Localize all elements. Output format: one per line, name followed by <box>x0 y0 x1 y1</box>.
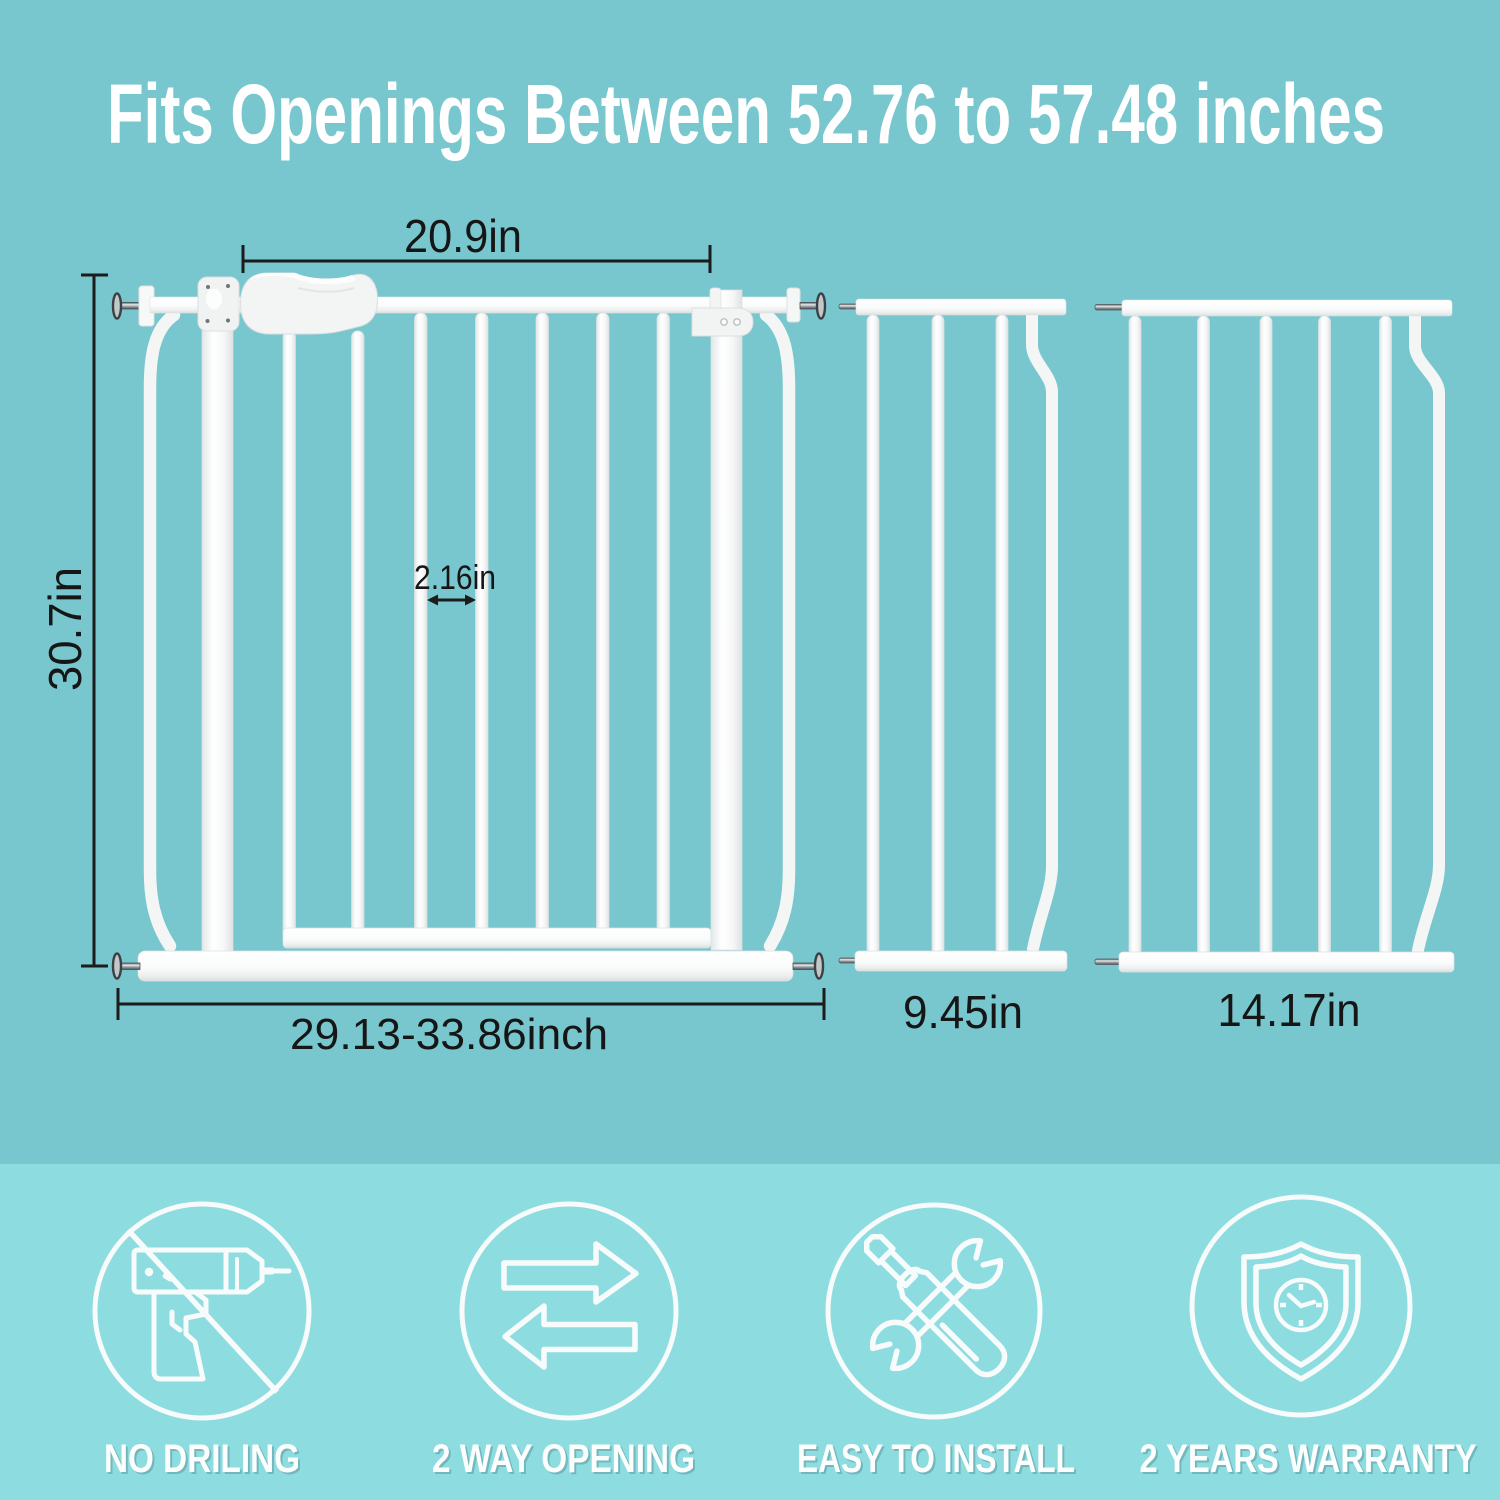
svg-text:2 WAY OPENING: 2 WAY OPENING <box>432 1437 695 1481</box>
svg-text:29.13-33.86inch: 29.13-33.86inch <box>290 1010 608 1059</box>
svg-text:Fits Openings Between 52.76 to: Fits Openings Between 52.76 to 57.48 inc… <box>107 67 1385 161</box>
svg-text:2.16in: 2.16in <box>414 559 496 597</box>
svg-text:14.17in: 14.17in <box>1218 984 1361 1036</box>
svg-text:9.45in: 9.45in <box>903 986 1023 1038</box>
svg-text:2 YEARS WARRANTY: 2 YEARS WARRANTY <box>1140 1437 1477 1481</box>
svg-text:EASY TO INSTALL: EASY TO INSTALL <box>797 1437 1075 1481</box>
svg-text:NO DRILING: NO DRILING <box>104 1437 300 1481</box>
svg-text:20.9in: 20.9in <box>404 210 522 262</box>
svg-text:30.7in: 30.7in <box>39 567 91 691</box>
